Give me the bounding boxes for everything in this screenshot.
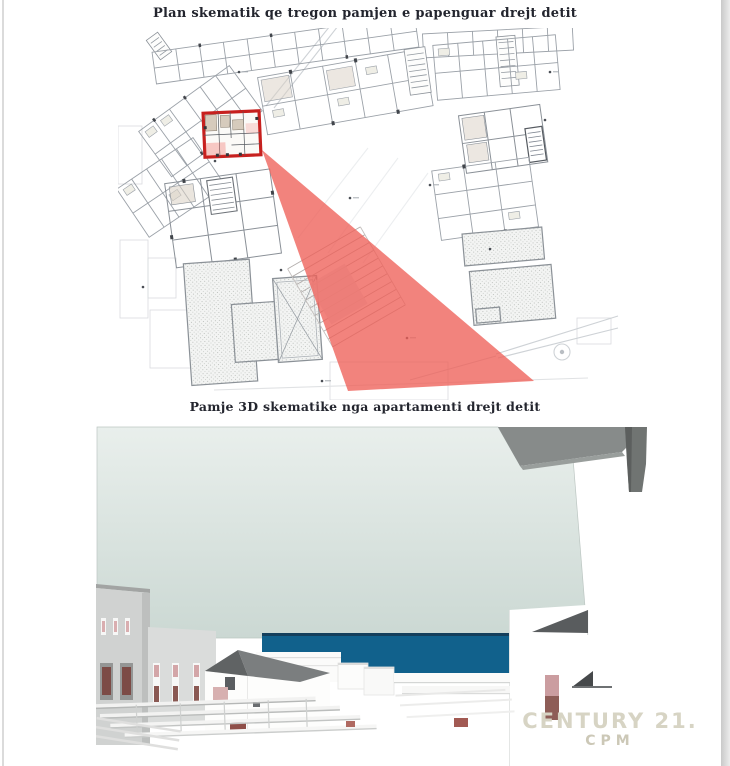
- plan-stair-centre: [404, 47, 431, 95]
- left-building: [96, 584, 150, 745]
- render-section-title: Pamje 3D skematike nga apartamenti drejt…: [0, 399, 730, 414]
- page-right-edge-strip: [721, 0, 730, 766]
- plan-cluster-right-upper: [458, 104, 547, 173]
- site-floor-plan: [118, 28, 623, 400]
- brand-watermark: CENTURY 21. CPM: [512, 710, 708, 749]
- listing-image-page: Plan skematik qe tregon pamjen e papengu…: [0, 0, 730, 766]
- plan-section-title: Plan skematik qe tregon pamjen e papengu…: [0, 6, 730, 21]
- brand-watermark-name: CENTURY 21.: [512, 710, 708, 733]
- page-left-edge-line: [2, 0, 4, 766]
- sky: [97, 427, 585, 638]
- plan-cluster-centre-left: [162, 167, 282, 270]
- apartment-highlight-box: [203, 111, 261, 157]
- plan-courtyards-bottom-left: [183, 255, 323, 386]
- brand-watermark-sub: CPM: [512, 734, 708, 749]
- plan-stair-top-left: [146, 32, 171, 60]
- plan-courtyards-right: [462, 227, 556, 326]
